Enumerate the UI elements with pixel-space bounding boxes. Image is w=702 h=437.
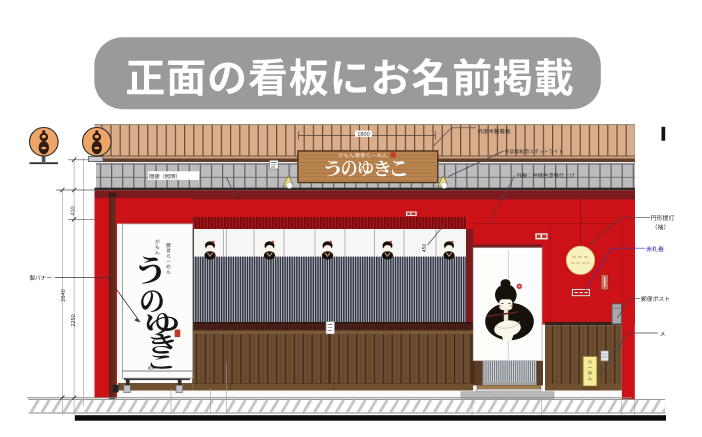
svg-text:410: 410 xyxy=(71,206,77,215)
svg-text:450: 450 xyxy=(422,243,428,252)
svg-text:1800: 1800 xyxy=(357,132,369,138)
svg-text:2250: 2250 xyxy=(71,314,77,326)
svg-text:2640: 2640 xyxy=(61,289,67,301)
